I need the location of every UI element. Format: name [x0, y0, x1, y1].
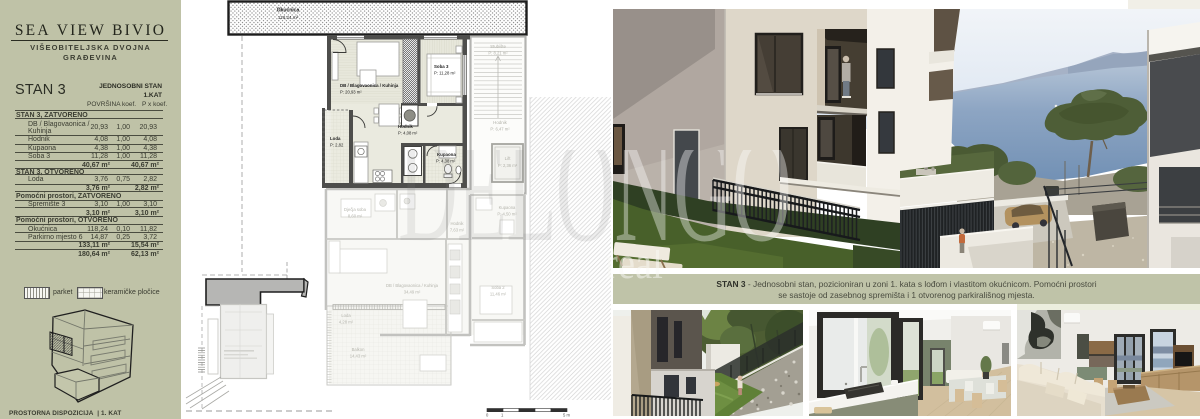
- svg-text:DB / Blagovaonica / Kuhinja: DB / Blagovaonica / Kuhinja: [386, 283, 439, 288]
- svg-text:34,49 m²: 34,49 m²: [404, 290, 421, 295]
- svg-text:Dječja soba: Dječja soba: [344, 207, 367, 212]
- svg-text:118,24 m²: 118,24 m²: [278, 15, 299, 20]
- svg-text:11,46 m²: 11,46 m²: [490, 292, 507, 297]
- svg-text:Soba 3: Soba 3: [434, 64, 449, 69]
- svg-text:Hodnik: Hodnik: [398, 124, 413, 129]
- svg-text:P: 4,08 m²: P: 4,08 m²: [398, 131, 418, 136]
- svg-text:Hodnik: Hodnik: [493, 120, 507, 125]
- svg-text:P: 20,93 m²: P: 20,93 m²: [340, 90, 362, 95]
- svg-text:P: 2,82: P: 2,82: [330, 143, 344, 148]
- svg-text:14,43 m²: 14,43 m²: [350, 354, 367, 359]
- svg-text:8,60 m²: 8,60 m²: [348, 214, 363, 219]
- svg-text:Loda: Loda: [341, 313, 351, 318]
- svg-text:5 m: 5 m: [563, 413, 570, 418]
- svg-text:0: 0: [486, 413, 489, 418]
- svg-text:P: 11,28 m²: P: 11,28 m²: [434, 71, 456, 76]
- svg-text:P: 6,47 m²: P: 6,47 m²: [490, 127, 510, 132]
- svg-text:DB / Blagovaonica / Kuhinja: DB / Blagovaonica / Kuhinja: [340, 83, 399, 88]
- svg-text:Soba 2: Soba 2: [491, 285, 505, 290]
- svg-text:Loda: Loda: [330, 136, 341, 141]
- svg-text:Okućnica: Okućnica: [277, 8, 300, 14]
- svg-text:Stubište: Stubište: [490, 44, 506, 49]
- svg-text:Balkon: Balkon: [352, 347, 365, 352]
- svg-text:P: 8,21 m²: P: 8,21 m²: [488, 51, 508, 56]
- svg-text:4,28 m²: 4,28 m²: [339, 320, 354, 325]
- svg-text:1: 1: [501, 413, 504, 418]
